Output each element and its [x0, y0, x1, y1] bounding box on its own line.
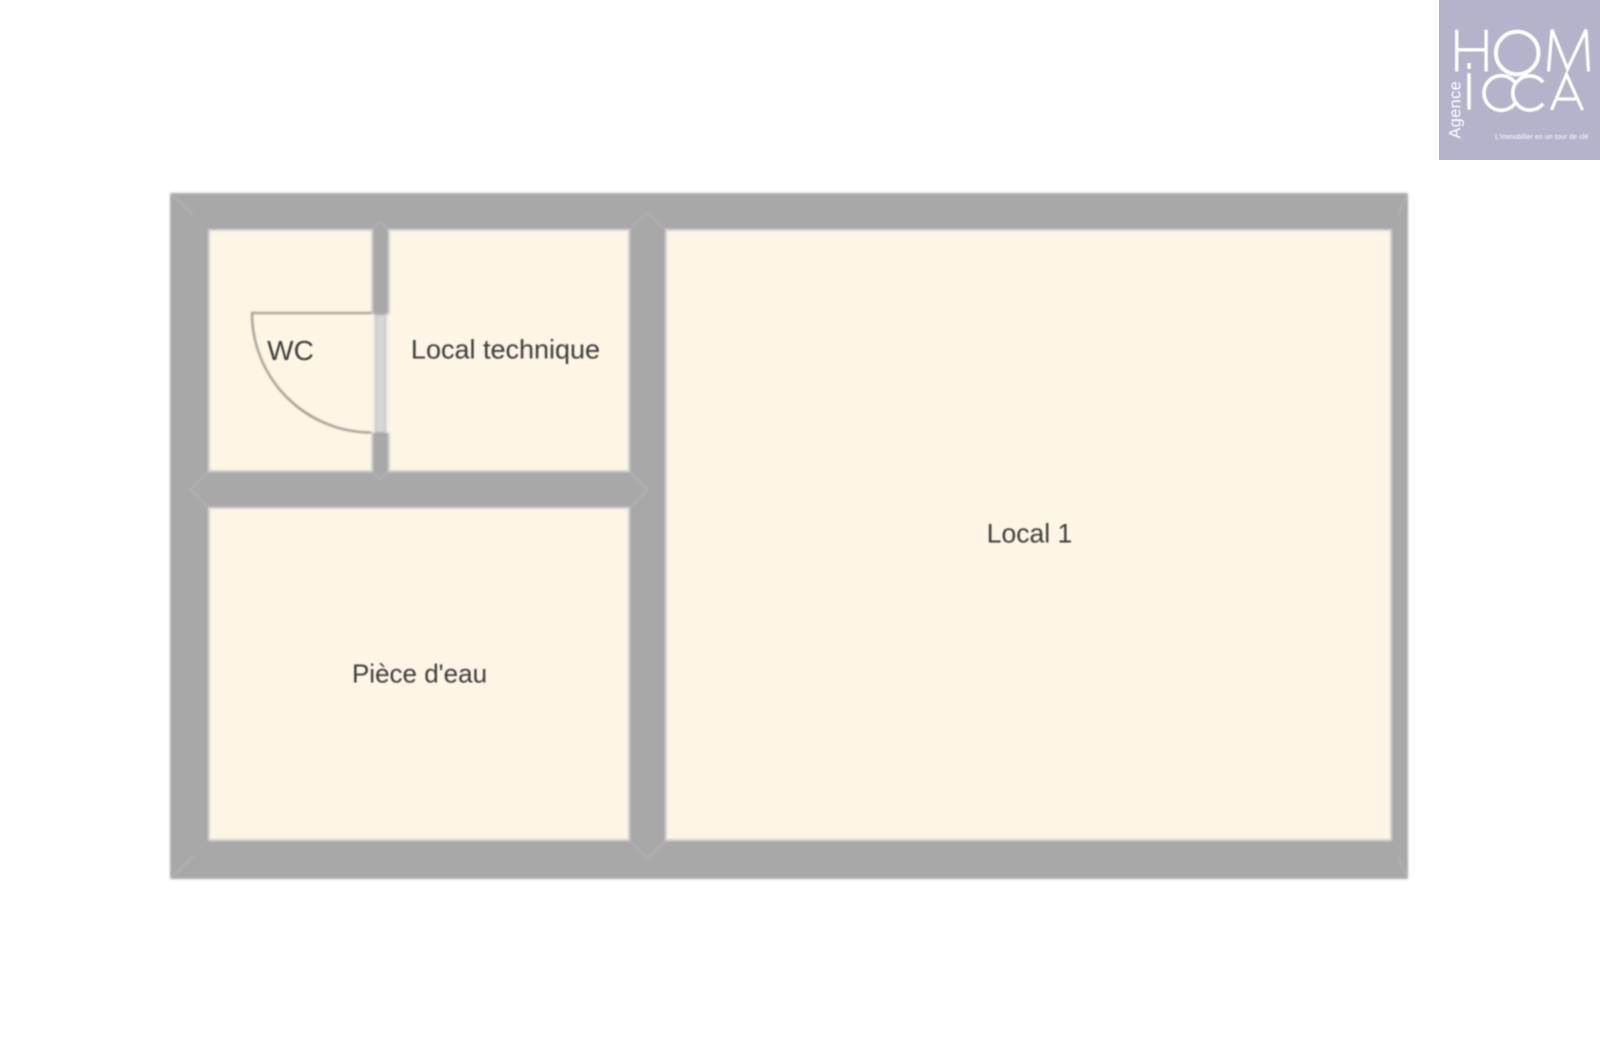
- svg-text:L'immobilier en un tour de clé: L'immobilier en un tour de clé: [1495, 134, 1588, 141]
- svg-text:Agence: Agence: [1447, 81, 1465, 139]
